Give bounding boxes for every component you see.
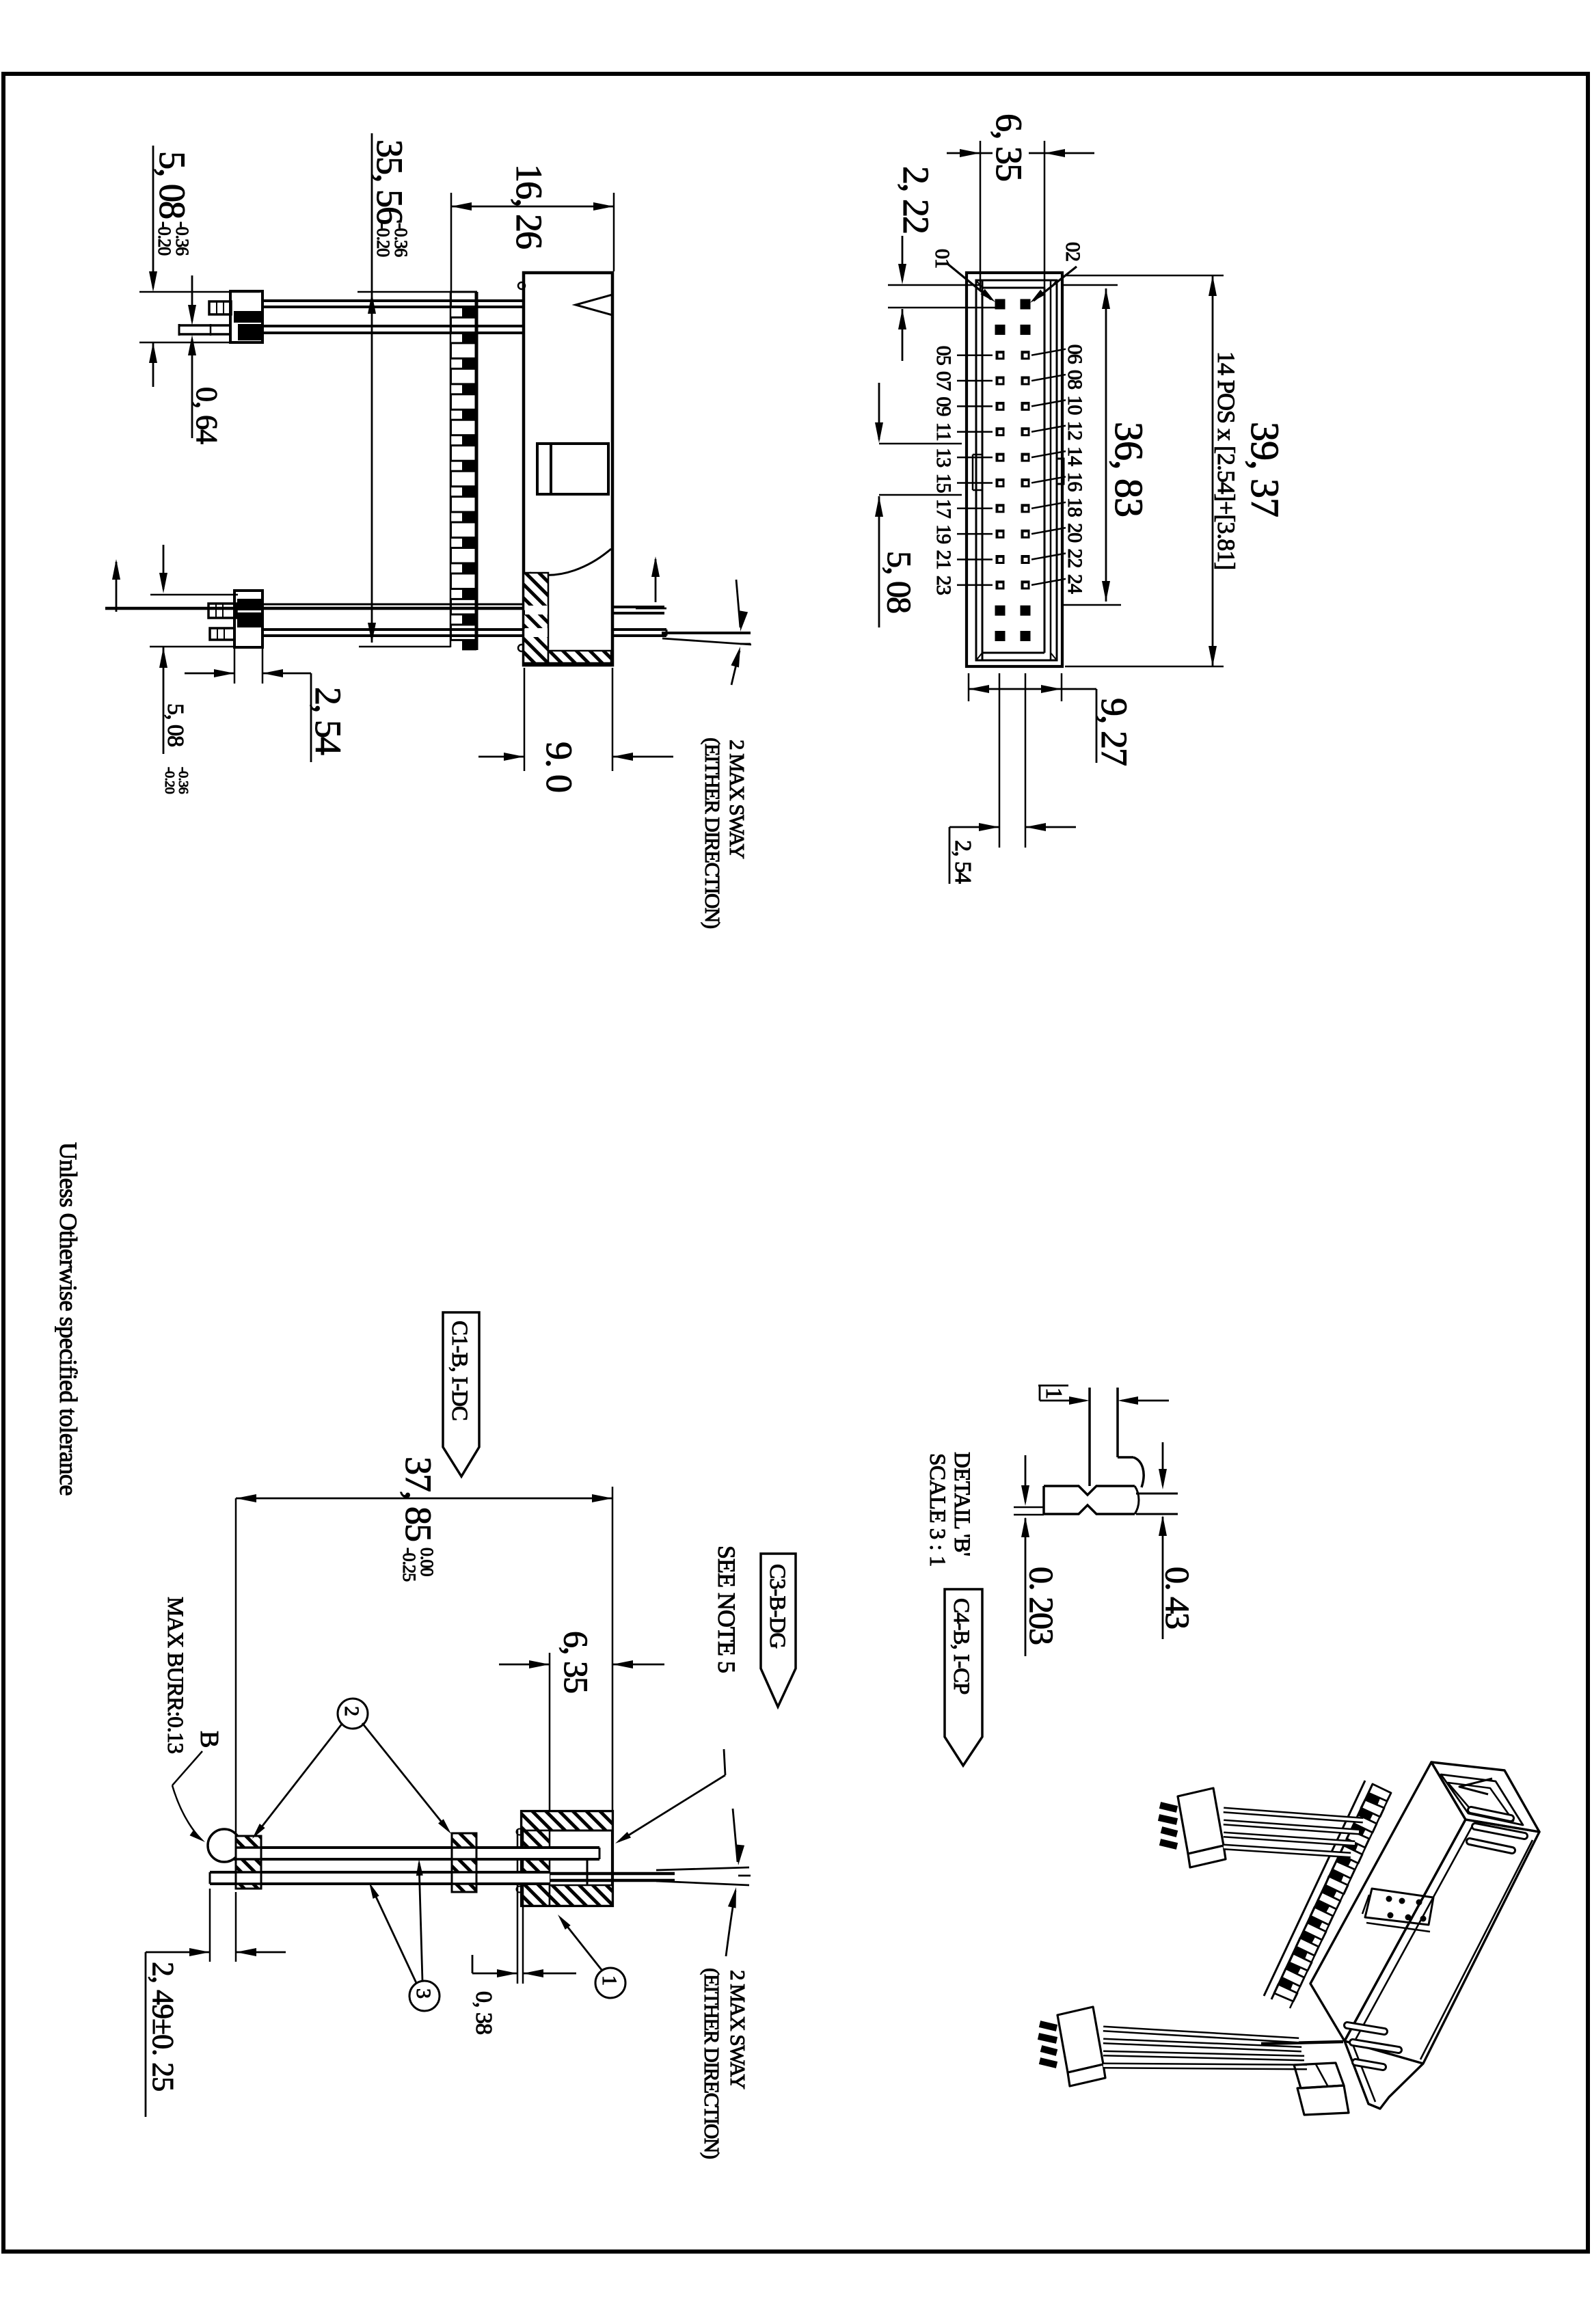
svg-text:10: 10 xyxy=(1064,395,1086,414)
svg-text:11: 11 xyxy=(932,422,955,441)
svg-text:35, 56: 35, 56 xyxy=(369,139,410,224)
svg-text:17: 17 xyxy=(932,499,955,519)
svg-text:(EITHER DIRECTION): (EITHER DIRECTION) xyxy=(700,1968,724,2159)
svg-text:13: 13 xyxy=(932,448,955,467)
svg-text:2: 2 xyxy=(340,1706,363,1716)
svg-text:36, 83: 36, 83 xyxy=(1107,422,1151,517)
svg-text:20: 20 xyxy=(1064,523,1086,542)
svg-text:14: 14 xyxy=(1064,446,1086,466)
svg-text:5, 08: 5, 08 xyxy=(152,151,193,218)
svg-text:18: 18 xyxy=(1064,498,1086,517)
svg-text:0.00: 0.00 xyxy=(417,1548,437,1577)
svg-text:SEE NOTE 5: SEE NOTE 5 xyxy=(713,1545,740,1673)
svg-text:12: 12 xyxy=(1064,421,1086,440)
svg-text:22: 22 xyxy=(1064,549,1086,568)
svg-text:6, 35: 6, 35 xyxy=(988,113,1029,180)
svg-text:SCALE 3 : 1: SCALE 3 : 1 xyxy=(925,1453,949,1567)
svg-text:3: 3 xyxy=(412,1988,435,1998)
svg-text:1: 1 xyxy=(1041,1388,1066,1398)
svg-text:(EITHER DIRECTION): (EITHER DIRECTION) xyxy=(701,738,725,928)
svg-text:-0.20: -0.20 xyxy=(154,221,174,256)
svg-text:2 MAX SWAY: 2 MAX SWAY xyxy=(725,740,749,859)
svg-text:0, 64: 0, 64 xyxy=(190,387,224,444)
svg-text:MAX BURR:0.13: MAX BURR:0.13 xyxy=(163,1597,187,1754)
svg-text:DETAIL 'B': DETAIL 'B' xyxy=(949,1452,974,1556)
svg-text:9, 27: 9, 27 xyxy=(1094,698,1135,766)
svg-text:2, 49±0. 25: 2, 49±0. 25 xyxy=(146,1962,180,2091)
svg-text:0. 43: 0. 43 xyxy=(1159,1567,1197,1629)
svg-text:-0.36: -0.36 xyxy=(176,767,191,794)
svg-text:23: 23 xyxy=(932,576,955,595)
svg-text:2, 54: 2, 54 xyxy=(308,687,349,755)
svg-text:C4-B, I-CP: C4-B, I-CP xyxy=(949,1598,973,1694)
svg-text:06: 06 xyxy=(1064,344,1086,364)
svg-text:5, 08: 5, 08 xyxy=(163,703,188,746)
svg-text:-0.36: -0.36 xyxy=(172,221,192,256)
svg-text:B: B xyxy=(195,1731,224,1748)
svg-text:-0.20: -0.20 xyxy=(373,223,393,257)
svg-text:08: 08 xyxy=(1064,370,1086,389)
svg-text:05: 05 xyxy=(932,346,955,365)
svg-text:39, 37: 39, 37 xyxy=(1243,422,1287,517)
svg-text:-0.20: -0.20 xyxy=(162,767,177,794)
svg-text:09: 09 xyxy=(932,396,955,416)
svg-text:21: 21 xyxy=(932,550,955,569)
svg-text:2 MAX SWAY: 2 MAX SWAY xyxy=(726,1970,750,2089)
svg-text:2, 22: 2, 22 xyxy=(895,166,936,233)
svg-text:16, 26: 16, 26 xyxy=(509,164,550,249)
svg-text:37, 85: 37, 85 xyxy=(398,1457,439,1541)
svg-text:0, 38: 0, 38 xyxy=(471,1991,496,2034)
svg-text:2, 54: 2, 54 xyxy=(950,840,975,884)
svg-text:5, 08: 5, 08 xyxy=(880,551,919,613)
svg-text:16: 16 xyxy=(1064,472,1086,491)
svg-text:-0.25: -0.25 xyxy=(399,1548,419,1581)
svg-text:24: 24 xyxy=(1064,574,1086,594)
svg-text:15: 15 xyxy=(932,473,955,492)
svg-text:Unless Otherwise specified tol: Unless Otherwise specified tolerance xyxy=(55,1142,82,1496)
svg-text:14 POS x [2.54]+[3.81]: 14 POS x [2.54]+[3.81] xyxy=(1213,351,1240,569)
svg-text:0. 203: 0. 203 xyxy=(1023,1567,1061,1645)
svg-text:-0.36: -0.36 xyxy=(391,223,411,257)
svg-text:6, 35: 6, 35 xyxy=(557,1631,595,1693)
svg-text:19: 19 xyxy=(932,524,955,543)
svg-text:C3-B-DG: C3-B-DG xyxy=(765,1564,790,1648)
svg-text:07: 07 xyxy=(932,371,955,391)
svg-text:02: 02 xyxy=(1062,242,1084,261)
svg-text:C1-B, I-DC: C1-B, I-DC xyxy=(447,1321,472,1420)
svg-text:9. 0: 9. 0 xyxy=(539,742,580,792)
svg-text:1: 1 xyxy=(598,1975,621,1985)
